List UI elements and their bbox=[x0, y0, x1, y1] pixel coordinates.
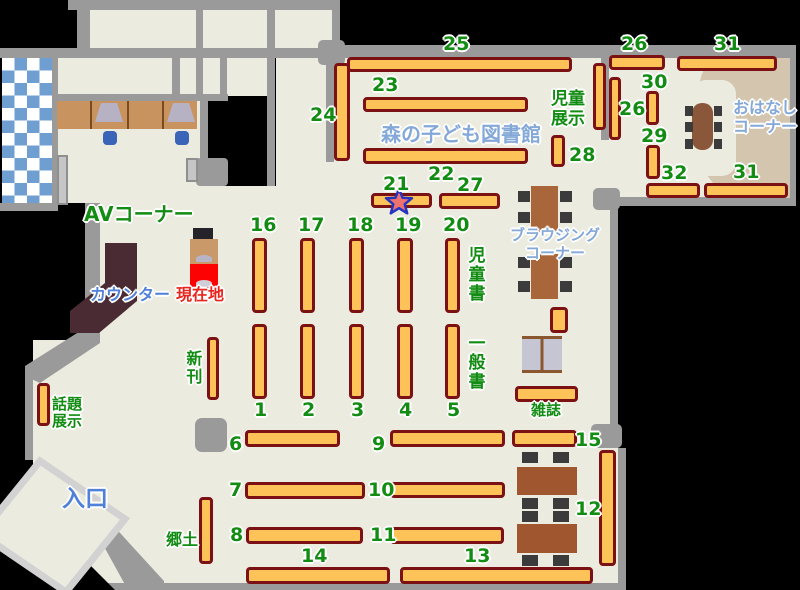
reading-table bbox=[517, 467, 577, 495]
shelf-4 bbox=[397, 324, 413, 399]
shelf-22 bbox=[363, 148, 528, 164]
general-books-label: 一般書 bbox=[464, 334, 484, 391]
story-corner-label: おはなしコーナー bbox=[733, 98, 797, 136]
floor-room-a2 bbox=[203, 10, 267, 48]
door-left bbox=[57, 155, 68, 205]
shelf-label-24: 24 bbox=[310, 106, 336, 125]
wall-story-bottom bbox=[605, 197, 796, 206]
shelf-18 bbox=[349, 238, 364, 313]
shelf-label-9: 9 bbox=[372, 435, 385, 454]
chair-blue bbox=[175, 131, 189, 145]
floor-room-b3 bbox=[203, 58, 220, 96]
chair bbox=[714, 139, 722, 149]
wall-r1b bbox=[267, 10, 275, 186]
shelf-label-25: 25 bbox=[443, 35, 469, 54]
shelf-label-13: 13 bbox=[464, 547, 490, 566]
chair bbox=[714, 122, 722, 132]
shelf-label-29: 29 bbox=[641, 127, 667, 146]
shelf-23 bbox=[363, 97, 528, 112]
shelf-label-32: 32 bbox=[661, 164, 687, 183]
chair bbox=[560, 281, 572, 292]
chair bbox=[518, 281, 530, 292]
shelf-label-1: 1 bbox=[254, 401, 267, 420]
av-desk-divider bbox=[127, 101, 129, 129]
shelf-2 bbox=[300, 324, 315, 399]
shelf-label-22: 22 bbox=[428, 165, 454, 184]
wall-left-low bbox=[25, 368, 33, 460]
children-books-label: 児童書 bbox=[464, 246, 484, 303]
av-desk-divider bbox=[162, 101, 164, 129]
shelf-19 bbox=[397, 238, 413, 313]
shelf-20 bbox=[445, 238, 460, 313]
wall-topleft bbox=[77, 10, 90, 48]
floor-room-b1 bbox=[58, 58, 172, 94]
chair bbox=[560, 212, 572, 223]
shelf-label-5: 5 bbox=[447, 401, 460, 420]
av-corner-label: AVコーナー bbox=[84, 203, 194, 226]
shelf-1 bbox=[252, 324, 267, 399]
chair bbox=[522, 511, 538, 522]
kiosk-body-arc bbox=[196, 255, 212, 262]
shelf-label-14: 14 bbox=[301, 547, 327, 566]
shelf-9 bbox=[390, 430, 505, 447]
shelf-label-6: 6 bbox=[229, 435, 242, 454]
chair bbox=[553, 555, 569, 566]
shelf-browsing-small bbox=[550, 307, 568, 333]
pillar-mid bbox=[195, 418, 227, 452]
chair bbox=[685, 122, 693, 132]
shelf-label-26a: 26 bbox=[621, 35, 647, 54]
shelf-label-19: 19 bbox=[395, 216, 421, 235]
children-display-label: 児童展示 bbox=[551, 90, 585, 129]
shelf-30 bbox=[646, 91, 659, 125]
shelf-label-17: 17 bbox=[298, 216, 324, 235]
kiosk-cap bbox=[193, 228, 213, 239]
shelf-31-bottom bbox=[704, 183, 788, 198]
map-title: 森の子ども図書館 bbox=[381, 118, 541, 147]
shelf-label-11: 11 bbox=[370, 526, 396, 545]
shelf-8 bbox=[246, 527, 363, 544]
shelf-11 bbox=[390, 527, 504, 544]
wall-top bbox=[68, 0, 340, 10]
browsing-corner-label: ブラウジングコーナー bbox=[505, 226, 605, 262]
shelf-6 bbox=[245, 430, 340, 447]
shelf-label-30: 30 bbox=[641, 73, 667, 92]
entrance-label: 入口 bbox=[62, 487, 108, 512]
chair bbox=[522, 555, 538, 566]
wall-r2a bbox=[172, 58, 180, 94]
shelf-10 bbox=[390, 482, 505, 498]
shelf-label-7: 7 bbox=[229, 481, 242, 500]
topic-display-label: 話題展示 bbox=[52, 396, 82, 431]
shelf-29 bbox=[646, 145, 660, 179]
shelf-5 bbox=[445, 324, 460, 399]
floor-room-a1 bbox=[90, 10, 196, 48]
chair-blue bbox=[103, 131, 117, 145]
chair bbox=[685, 139, 693, 149]
chair bbox=[518, 191, 530, 202]
shelf-26-top bbox=[609, 55, 665, 70]
story-table bbox=[692, 103, 713, 150]
floor-room-b2 bbox=[180, 58, 196, 94]
magazines-label: 雑誌 bbox=[531, 402, 561, 419]
shelf-topic-display bbox=[37, 383, 50, 426]
shelf-16 bbox=[252, 238, 267, 313]
shelf-3 bbox=[349, 324, 364, 399]
chair bbox=[685, 106, 693, 116]
chair bbox=[560, 191, 572, 202]
shelf-label-28: 28 bbox=[569, 146, 595, 165]
wall-br-right bbox=[618, 448, 626, 590]
reading-table bbox=[517, 524, 577, 553]
shelf-label-20: 20 bbox=[443, 216, 469, 235]
shelf-label-16: 16 bbox=[250, 216, 276, 235]
shelf-label-31a: 31 bbox=[714, 35, 740, 54]
wall-v1 bbox=[200, 96, 208, 158]
shelf-15 bbox=[512, 430, 577, 447]
av-desk-divider bbox=[90, 101, 92, 129]
shelf-label-26b: 26 bbox=[619, 100, 645, 119]
local-label: 郷土 bbox=[166, 531, 198, 549]
shelf-label-8: 8 bbox=[230, 526, 243, 545]
shelf-label-27: 27 bbox=[457, 176, 483, 195]
wall-wing-left bbox=[326, 42, 334, 162]
new-books-label: 新刊 bbox=[183, 350, 201, 386]
wall-h1 bbox=[0, 48, 340, 58]
chair bbox=[522, 452, 538, 463]
shelf-children-display bbox=[593, 63, 606, 130]
shelf-32 bbox=[646, 183, 700, 198]
shelf-magazines bbox=[515, 386, 578, 402]
shelf-17 bbox=[300, 238, 315, 313]
chair bbox=[714, 106, 722, 116]
shelf-28 bbox=[551, 135, 565, 167]
wall-hall-right bbox=[610, 206, 618, 424]
shelf-7 bbox=[245, 482, 365, 499]
shelf-label-18: 18 bbox=[347, 216, 373, 235]
wall-bottom bbox=[100, 583, 622, 590]
shelf-label-3: 3 bbox=[351, 401, 364, 420]
wall-r2c bbox=[220, 58, 227, 96]
shelf-label-21: 21 bbox=[383, 175, 409, 194]
shelf-label-10: 10 bbox=[368, 481, 394, 500]
shelf-31-top bbox=[677, 56, 777, 71]
counter-label: カウンター bbox=[90, 286, 170, 304]
shelf-12 bbox=[599, 450, 616, 566]
wall-checker-bottom bbox=[0, 203, 58, 211]
chair bbox=[553, 511, 569, 522]
shelf-local bbox=[199, 497, 213, 564]
shelf-14 bbox=[246, 567, 390, 584]
shelf-label-31b: 31 bbox=[733, 163, 759, 182]
floor-room-c1 bbox=[227, 58, 267, 96]
shelf-label-12: 12 bbox=[575, 500, 601, 519]
pillar-av bbox=[196, 158, 228, 186]
chair bbox=[522, 498, 538, 509]
shelf-new-books bbox=[207, 337, 219, 400]
shelf-25 bbox=[347, 57, 572, 72]
shelf-label-4: 4 bbox=[399, 401, 412, 420]
stairs-checkered-area bbox=[2, 58, 52, 203]
chair bbox=[518, 212, 530, 223]
library-floor-map: 25 23 24 22 21 27 26 31 30 26 29 32 31 2… bbox=[0, 0, 800, 590]
shelf-13 bbox=[400, 567, 593, 584]
shelf-label-15: 15 bbox=[575, 431, 601, 450]
chair bbox=[553, 452, 569, 463]
current-location-label: 現在地 bbox=[176, 287, 224, 303]
chair bbox=[553, 498, 569, 509]
shelf-label-2: 2 bbox=[302, 401, 315, 420]
shelf-label-23: 23 bbox=[372, 76, 398, 95]
door-right bbox=[186, 158, 198, 182]
study-carrels bbox=[522, 336, 562, 373]
